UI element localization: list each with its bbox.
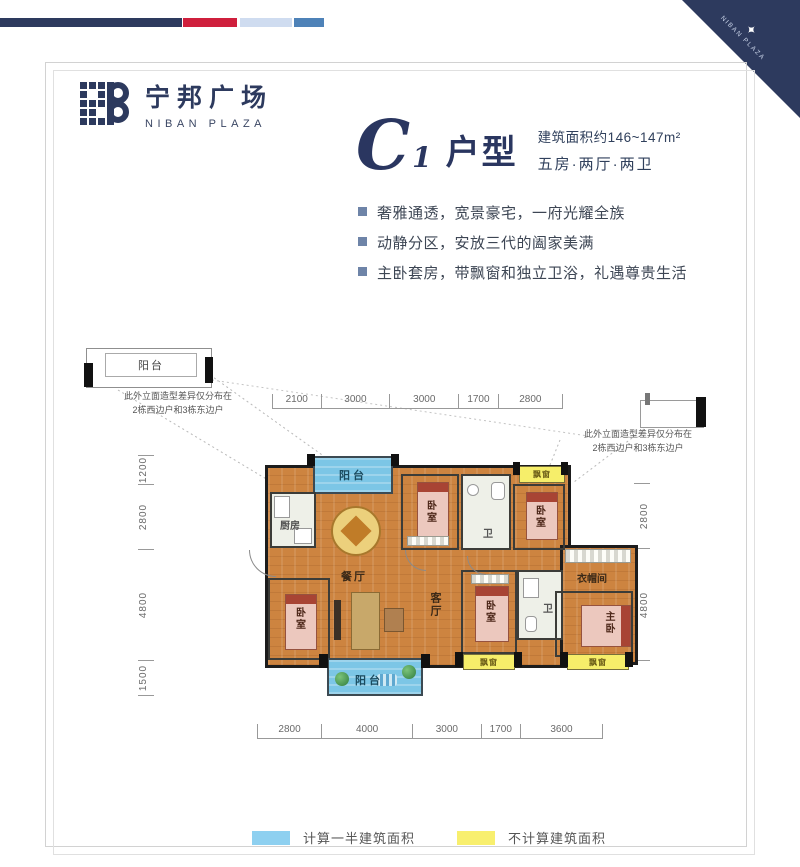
baywindow-top: 飘窗 — [519, 466, 565, 483]
room-label: 卧室 — [403, 476, 457, 548]
feature-item: 动静分区，安放三代的阖家美满 — [358, 232, 687, 253]
wall-pier — [625, 652, 633, 667]
feature-item: 奢雅通透，宽景豪宅，一府光耀全族 — [358, 202, 687, 223]
room-balcony-bottom: 阳台 — [327, 658, 423, 696]
dimension-value: 3000 — [322, 394, 390, 405]
legend: 计算一半建筑面积不计算建筑面积 — [252, 828, 648, 847]
coffee-table — [384, 608, 404, 632]
wall-cap — [84, 363, 93, 387]
unit-letter: C — [356, 116, 410, 176]
dimension-segment: 3000 — [412, 724, 481, 739]
dimension-value: 1700 — [459, 394, 497, 405]
room-bedroom-top-center: 卧室 — [401, 474, 459, 550]
room-label: 阳台 — [355, 672, 383, 688]
detail-balcony-label: 阳台 — [105, 353, 197, 377]
room-closet: 衣帽间 — [563, 547, 633, 591]
room-label: 衣帽间 — [577, 570, 607, 585]
dimension-segment: 4800 — [138, 549, 154, 660]
brand-logo: 宁邦广场 NIBAN PLAZA — [80, 78, 273, 130]
room-kitchen: 厨房 — [270, 492, 316, 548]
dimension-value: 4800 — [138, 592, 149, 618]
room-label: 卫 — [483, 525, 493, 540]
dimension-value: 2800 — [499, 394, 562, 405]
wall-pier — [513, 462, 520, 475]
room-label: 卫 — [543, 600, 553, 615]
dimension-value: 3600 — [521, 724, 602, 735]
note-line: 2栋西边户和3栋东边户 — [88, 404, 268, 418]
feature-item: 主卧套房，带飘窗和独立卫浴，礼遇尊贵生活 — [358, 262, 687, 283]
legend-item: 不计算建筑面积 — [457, 828, 606, 847]
facade-note-left: 此外立面造型差异仅分布在 2栋西边户和3栋东边户 — [88, 390, 268, 418]
dimension-segment: 4000 — [321, 724, 412, 739]
plant — [402, 665, 416, 679]
feature-text: 奢雅通透，宽景豪宅，一府光耀全族 — [377, 202, 625, 223]
legend-item: 计算一半建筑面积 — [252, 828, 415, 847]
dimension-value: 2100 — [273, 394, 321, 405]
wall-pier — [391, 454, 399, 466]
closet-shelves — [565, 549, 631, 563]
toilet — [525, 616, 537, 632]
dimension-segment: 3600 — [520, 724, 602, 739]
unit-type-label: 户型 — [446, 125, 518, 174]
feature-text: 动静分区，安放三代的阖家美满 — [377, 232, 594, 253]
dimension-segment: 2800 — [257, 724, 321, 739]
kitchen-sink — [274, 496, 290, 518]
room-label: 主卧 — [601, 611, 616, 635]
dimension-line-bottom: 28004000300017003600 — [257, 724, 603, 739]
note-line: 此外立面造型差异仅分布在 — [88, 390, 268, 404]
dimension-segment: 1700 — [481, 724, 520, 739]
legend-label: 计算一半建筑面积 — [303, 828, 415, 847]
dimension-value: 3000 — [390, 394, 458, 405]
topbar-red-segment — [183, 18, 237, 27]
room-master-bedroom: 主卧 — [555, 591, 633, 657]
wall-pier — [514, 652, 522, 667]
bullet-square-icon — [358, 237, 367, 246]
dimension-segment: 3000 — [321, 394, 390, 409]
baywindow-bottom-1: 飘窗 — [463, 654, 515, 670]
dimension-segment: 1500 — [138, 660, 154, 695]
wall-pier — [560, 652, 568, 667]
dimension-value: 4000 — [322, 724, 412, 735]
toilet — [491, 482, 505, 500]
dimension-segment: 1200 — [138, 455, 154, 484]
brand-name-cn: 宁邦广场 — [145, 78, 273, 114]
room-label: 卧室 — [515, 486, 563, 548]
sink — [467, 484, 479, 496]
room-bedroom-top-right: 卧室 — [513, 484, 565, 550]
dimension-value: 1500 — [138, 665, 149, 691]
brand-logo-icon — [80, 78, 132, 130]
room-label: 飘窗 — [520, 467, 564, 482]
tv-cabinet — [334, 600, 341, 640]
room-label: 飘窗 — [568, 655, 628, 669]
topbar-navy-segment — [0, 18, 182, 27]
dimension-line-left: 1200280048001500 — [138, 455, 154, 696]
room-label: 卧室 — [270, 580, 328, 658]
dimension-segment: 3000 — [389, 394, 458, 409]
topbar-paleblue-segment — [240, 18, 292, 27]
wall-pier — [319, 654, 328, 668]
plant — [335, 672, 349, 686]
wall-cap — [205, 357, 213, 383]
dining-table — [331, 506, 381, 556]
wall-cap — [645, 393, 650, 405]
bullet-square-icon — [358, 267, 367, 276]
dimension-value: 3000 — [413, 724, 481, 735]
wall-pier — [561, 462, 568, 475]
floorplan-area: 阳台 此外立面造型差异仅分布在 2栋西边户和3栋东边户 此外立面造型差异仅分布在… — [0, 340, 780, 790]
room-label: 客厅 — [427, 592, 443, 618]
facade-detail-drawing-right — [640, 400, 704, 428]
legend-swatch — [457, 831, 495, 845]
wall-pier — [307, 454, 315, 466]
dimension-segment: 2100 — [272, 394, 321, 409]
legend-swatch — [252, 831, 290, 845]
unit-title: C 1 户型 建筑面积约146~147m² 五房·两厅·两卫 — [356, 116, 681, 176]
dimension-segment: 2800 — [498, 394, 562, 409]
dimension-line-top: 21003000300017002800 — [272, 394, 563, 409]
sofa — [351, 592, 380, 650]
wall-pier — [421, 654, 430, 668]
feature-text: 主卧套房，带飘窗和独立卫浴，礼遇尊贵生活 — [377, 262, 687, 283]
dimension-value: 2800 — [138, 503, 149, 529]
legend-label: 不计算建筑面积 — [508, 828, 606, 847]
note-line: 此外立面造型差异仅分布在 — [548, 428, 728, 442]
dimension-segment: 2800 — [138, 484, 154, 549]
baywindow-bottom-2: 飘窗 — [567, 654, 629, 670]
room-label: 阳台 — [315, 458, 391, 492]
unit-info: 建筑面积约146~147m² 五房·两厅·两卫 — [538, 126, 681, 174]
facade-detail-drawing-left: 阳台 — [86, 348, 212, 388]
dimension-value: 1700 — [482, 724, 520, 735]
wall-pier — [455, 652, 463, 667]
room-label: 厨房 — [280, 517, 300, 532]
unit-number: 1 — [412, 141, 431, 174]
feature-list: 奢雅通透，宽景豪宅，一府光耀全族 动静分区，安放三代的阖家美满 主卧套房，带飘窗… — [358, 202, 687, 292]
room-balcony-top: 阳台 — [313, 456, 393, 494]
unit-area: 建筑面积约146~147m² — [538, 126, 681, 146]
brand-name-en: NIBAN PLAZA — [145, 118, 273, 130]
topbar-steelblue-segment — [294, 18, 324, 27]
flyer-page: { "brand": { "logo_cn": "宁邦广场", "logo_en… — [0, 0, 800, 867]
dimension-segment: 1700 — [458, 394, 497, 409]
dimension-value: 1200 — [138, 457, 149, 483]
room-label: 餐厅 — [341, 568, 367, 584]
room-bath-top: 卫 — [461, 474, 511, 550]
dimension-value: 2800 — [258, 724, 321, 735]
unit-config: 五房·两厅·两卫 — [538, 153, 681, 174]
shower — [523, 578, 539, 598]
floorplan-drawing: 阳台 厨房 餐厅 卧室 卫 飘窗 卧室 — [255, 450, 645, 710]
room-label: 卧室 — [463, 572, 515, 652]
bullet-square-icon — [358, 207, 367, 216]
brand-logo-text: 宁邦广场 NIBAN PLAZA — [145, 78, 273, 130]
room-label: 飘窗 — [464, 655, 514, 669]
wall-cap — [696, 397, 706, 427]
room-bedroom-bottom-left: 卧室 — [268, 578, 330, 660]
room-bedroom-bottom-center: 卧室 — [461, 570, 517, 654]
